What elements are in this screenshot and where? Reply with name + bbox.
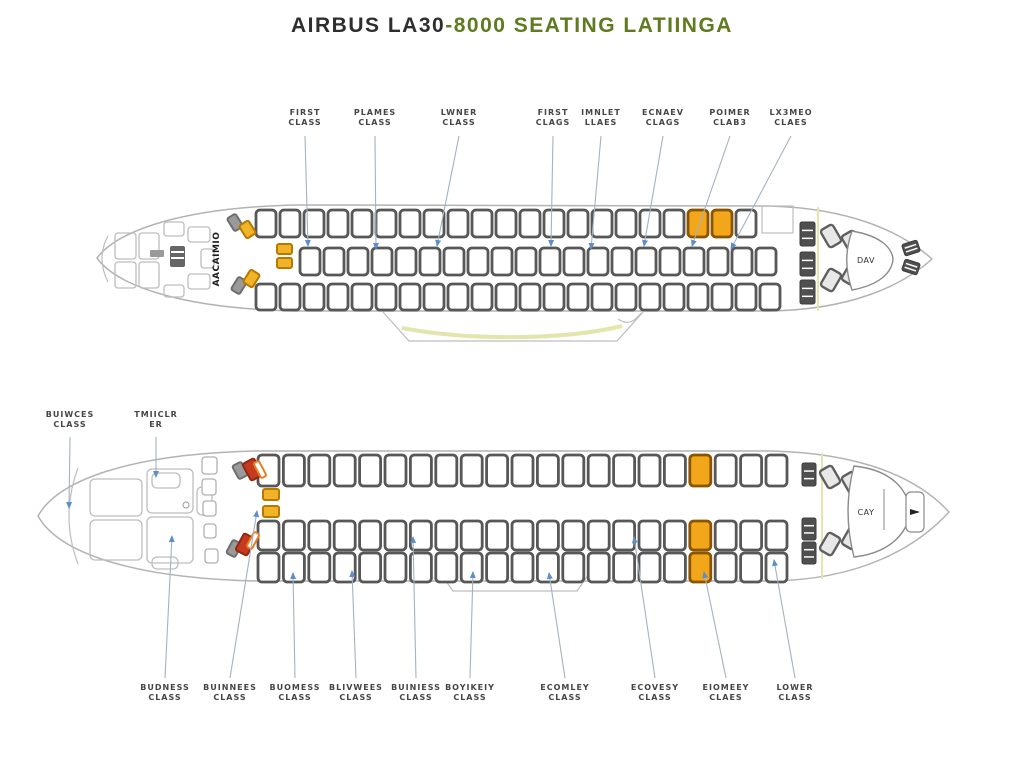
leader-line [352, 571, 356, 678]
bottom-highlighted-seat [690, 455, 711, 486]
bottom-seat [664, 455, 685, 486]
top-seat [280, 210, 300, 237]
bottom-seat [588, 455, 609, 486]
bottom-seat [766, 553, 787, 582]
top-seat [732, 248, 752, 275]
top-highlighted-seat [688, 210, 708, 237]
top-seat [300, 248, 320, 275]
bottom-seat [664, 553, 685, 582]
top-seat [324, 248, 344, 275]
bottom-seat [766, 521, 787, 550]
rear-dark-seat [800, 280, 815, 304]
top-seat [544, 210, 564, 237]
top-seat [420, 248, 440, 275]
leader-line [704, 572, 726, 678]
galley-cart [170, 246, 185, 267]
top-seat [280, 284, 300, 310]
bottom-seat [360, 455, 381, 486]
top-seat [472, 284, 492, 310]
top-seat [636, 248, 656, 275]
top-seat [328, 284, 348, 310]
rear-dark-seat [800, 222, 815, 246]
top-seat [352, 284, 372, 310]
top-seat [304, 284, 324, 310]
bottom-seat [639, 521, 660, 550]
bottom-seat [334, 455, 355, 486]
bottom-seat [741, 521, 762, 550]
seating-chart-page: AIRBUS LA30-8000 SEATING LATIINGA AACAIM… [0, 0, 1024, 768]
top-seat [568, 210, 588, 237]
bottom-seat [639, 455, 660, 486]
top-seat [396, 248, 416, 275]
top-seat [736, 284, 756, 310]
rear-area-text: CAY [858, 508, 875, 517]
top-seat [520, 210, 540, 237]
top-seat [448, 210, 468, 237]
wing-detail [618, 313, 641, 322]
top-seat [664, 284, 684, 310]
crew-seat [202, 457, 217, 474]
bottom-seat [512, 455, 533, 486]
bottom-seat [537, 521, 558, 550]
top-seat [400, 210, 420, 237]
bottom-seat [766, 455, 787, 486]
top-seat [564, 248, 584, 275]
bottom-seat [309, 553, 330, 582]
leader-line [293, 573, 295, 678]
top-seat [376, 284, 396, 310]
top-seat [544, 284, 564, 310]
top-seat [448, 284, 468, 310]
bottom-yellow-seat [263, 489, 279, 500]
bottom-seat [614, 455, 635, 486]
top-seat [664, 210, 684, 237]
top-seat [660, 248, 680, 275]
top-seat [400, 284, 420, 310]
top-seat [588, 248, 608, 275]
bottom-seat [461, 521, 482, 550]
bottom-seat [283, 521, 304, 550]
bottom-seat [614, 521, 635, 550]
bottom-seat [360, 521, 381, 550]
bottom-seat [258, 521, 279, 550]
top-seat [568, 284, 588, 310]
top-seat [496, 210, 516, 237]
top-seat [424, 284, 444, 310]
bottom-seat [258, 553, 279, 582]
bottom-seat [512, 553, 533, 582]
top-seat [444, 248, 464, 275]
crew-seat [202, 479, 216, 495]
top-seat [592, 210, 612, 237]
bottom-seat [410, 455, 431, 486]
wing-band [402, 326, 622, 337]
top-seat [540, 248, 560, 275]
cockpit-vertical-text: AACAIMIO [212, 232, 222, 287]
bottom-seat [563, 455, 584, 486]
bottom-seat [334, 521, 355, 550]
bottom-seat [487, 455, 508, 486]
bottom-seat [563, 553, 584, 582]
top-highlighted-seat [712, 210, 732, 237]
rear-dark-seat [800, 252, 815, 276]
bottom-seat [436, 455, 457, 486]
top-seat [472, 210, 492, 237]
bottom-seat [741, 553, 762, 582]
bottom-seat [512, 521, 533, 550]
top-seat [496, 284, 516, 310]
bottom-seat [715, 521, 736, 550]
aircraft-diagram-canvas: AACAIMIOГЭ+ФDAVCAY [0, 0, 1024, 768]
crew-seat [205, 549, 218, 563]
top-seat [372, 248, 392, 275]
top-seat [640, 284, 660, 310]
bottom-seat [309, 455, 330, 486]
bottom-seat [664, 521, 685, 550]
bottom-seat [461, 455, 482, 486]
bottom-seat [385, 521, 406, 550]
crew-seat [204, 524, 216, 538]
top-seat [612, 248, 632, 275]
top-seat [516, 248, 536, 275]
bottom-seat [715, 455, 736, 486]
top-yellow-seat [277, 244, 292, 254]
bottom-seat [588, 521, 609, 550]
top-seat [256, 210, 276, 237]
bottom-seat [537, 553, 558, 582]
bottom-seat [436, 553, 457, 582]
bottom-seat [436, 521, 457, 550]
top-seat [616, 284, 636, 310]
cockpit-console [150, 250, 164, 257]
bottom-seat [461, 553, 482, 582]
top-seat [492, 248, 512, 275]
rear-area-text: DAV [857, 256, 875, 265]
top-seat [328, 210, 348, 237]
top-seat [376, 210, 396, 237]
top-seat [256, 284, 276, 310]
top-seat [468, 248, 488, 275]
rear-dark-seat [802, 518, 816, 540]
top-seat [712, 284, 732, 310]
top-yellow-seat [277, 258, 292, 268]
bottom-seat [741, 455, 762, 486]
top-seat [688, 284, 708, 310]
rear-dark-seat [802, 463, 816, 486]
leader-line [470, 572, 473, 678]
bottom-seat [715, 553, 736, 582]
top-seat [684, 248, 704, 275]
bottom-seat [360, 553, 381, 582]
top-seat [348, 248, 368, 275]
rear-dark-seat [802, 542, 816, 564]
top-seat [760, 284, 780, 310]
top-seat [756, 248, 776, 275]
bottom-highlighted-seat [690, 521, 711, 550]
bottom-seat [614, 553, 635, 582]
top-seat [708, 248, 728, 275]
bottom-seat [487, 553, 508, 582]
bottom-seat [385, 455, 406, 486]
bottom-seat [563, 521, 584, 550]
bottom-seat [385, 553, 406, 582]
bottom-seat [283, 455, 304, 486]
bottom-yellow-seat [263, 506, 279, 517]
bottom-highlighted-seat [690, 553, 711, 582]
bottom-seat [283, 553, 304, 582]
crew-seat [203, 501, 216, 516]
top-seat [616, 210, 636, 237]
top-seat [352, 210, 372, 237]
top-seat [592, 284, 612, 310]
bottom-seat [309, 521, 330, 550]
bottom-seat [537, 455, 558, 486]
bottom-seat [588, 553, 609, 582]
leader-line [549, 573, 565, 678]
bottom-seat [487, 521, 508, 550]
top-seat [520, 284, 540, 310]
bottom-seat [639, 553, 660, 582]
